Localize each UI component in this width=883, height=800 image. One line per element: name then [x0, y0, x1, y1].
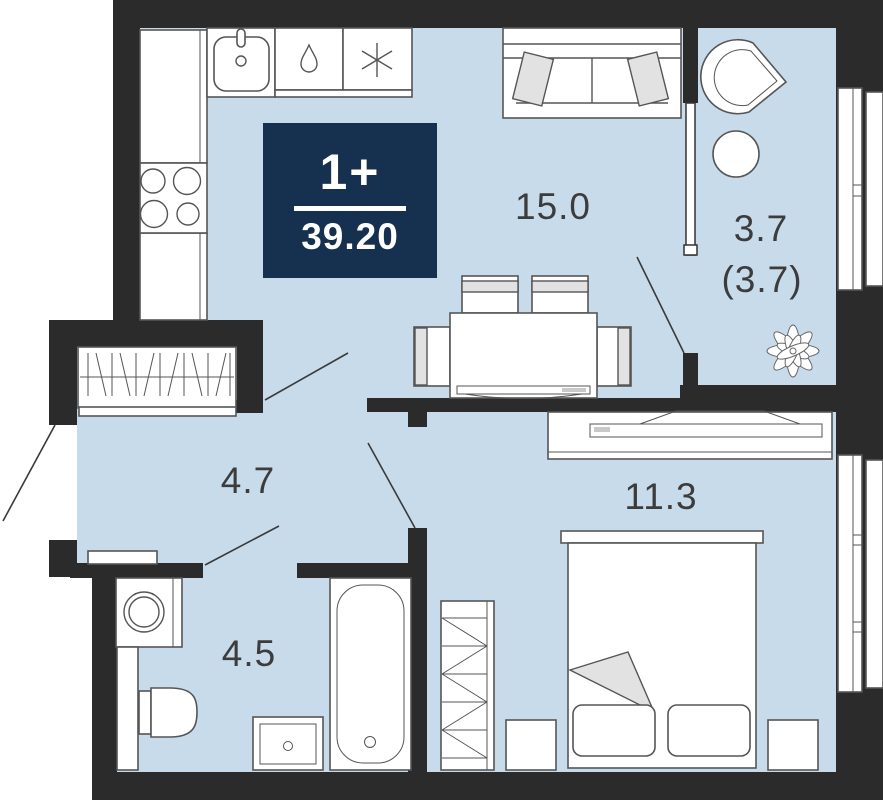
stove-burners-icon — [140, 163, 207, 233]
pillow — [668, 705, 750, 756]
nightstand — [768, 720, 818, 770]
toilet — [139, 688, 197, 737]
nightstand — [506, 720, 556, 770]
balcony-fan-chair — [701, 40, 786, 114]
apartment-badge: 1+ 39.20 — [263, 123, 437, 278]
duct-shaft — [117, 647, 138, 770]
dining-table — [414, 276, 631, 399]
balcony-glazing — [684, 103, 697, 255]
plant-icon — [767, 325, 819, 377]
hallway-shelf — [88, 551, 157, 564]
furniture-layer — [0, 0, 883, 800]
kitchen-sink — [207, 28, 275, 97]
balcony-round-table — [713, 131, 759, 177]
living-door-swing — [265, 353, 348, 400]
label-balcony-area-alt: (3.7) — [721, 259, 802, 301]
bathroom-door-swing — [205, 526, 279, 565]
fridge-unit — [343, 28, 412, 90]
bed — [561, 531, 763, 768]
faucet-icon — [237, 29, 245, 47]
bedroom-wardrobe — [441, 601, 494, 770]
washing-machine — [116, 578, 182, 647]
pillow — [573, 705, 655, 756]
window-bedroom — [838, 455, 883, 692]
apartment-area: 39.20 — [301, 218, 399, 255]
bathroom-sink — [253, 717, 323, 770]
label-balcony-area: 3.7 — [734, 208, 788, 250]
counter-edge — [275, 90, 412, 97]
bedroom-desk — [548, 411, 832, 459]
window-living — [838, 88, 883, 290]
dishwasher-unit — [275, 28, 343, 90]
hallway-wardrobe — [78, 347, 236, 416]
balcony-door-swing — [637, 257, 684, 353]
label-hallway-area: 4.7 — [221, 460, 275, 502]
label-bedroom-area: 11.3 — [624, 476, 697, 518]
floor-plan: 1+ 39.20 15.0 3.7 (3.7) 4.7 4.5 11.3 — [0, 0, 883, 800]
apartment-type: 1+ — [319, 147, 380, 197]
label-living-area: 15.0 — [515, 186, 591, 228]
sofa — [503, 28, 681, 118]
bathtub — [330, 578, 411, 770]
badge-divider — [294, 206, 406, 211]
bedroom-door-swing — [368, 443, 415, 528]
label-bathroom-area: 4.5 — [222, 633, 276, 675]
entrance-door-swing — [3, 425, 55, 521]
